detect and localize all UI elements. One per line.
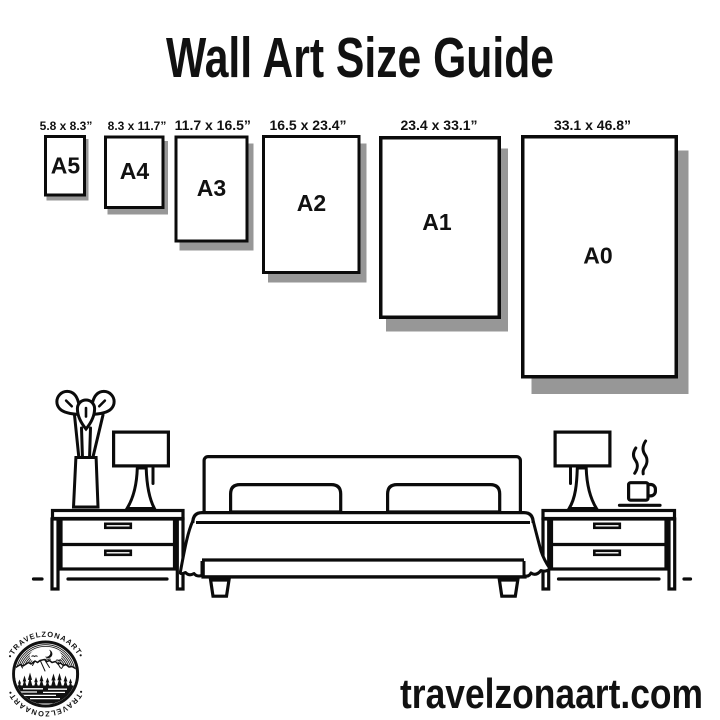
svg-text:8.3 x 11.7”: 8.3 x 11.7” bbox=[108, 119, 167, 133]
svg-text:Wall Art Size Guide: Wall Art Size Guide bbox=[166, 26, 554, 90]
svg-text:11.7 x 16.5”: 11.7 x 16.5” bbox=[175, 117, 251, 133]
svg-text:A0: A0 bbox=[583, 243, 612, 269]
svg-text:A5: A5 bbox=[51, 153, 81, 179]
svg-text:A4: A4 bbox=[120, 158, 150, 184]
svg-text:5.8 x 8.3”: 5.8 x 8.3” bbox=[40, 119, 93, 133]
svg-text:23.4 x 33.1”: 23.4 x 33.1” bbox=[400, 117, 477, 133]
svg-text:A1: A1 bbox=[422, 209, 452, 235]
svg-text:33.1 x 46.8”: 33.1 x 46.8” bbox=[554, 117, 631, 133]
svg-text:16.5 x 23.4”: 16.5 x 23.4” bbox=[269, 117, 346, 133]
svg-text:A3: A3 bbox=[197, 175, 226, 201]
svg-text:A2: A2 bbox=[297, 190, 326, 216]
svg-text:travelzonaart.com: travelzonaart.com bbox=[400, 670, 703, 717]
